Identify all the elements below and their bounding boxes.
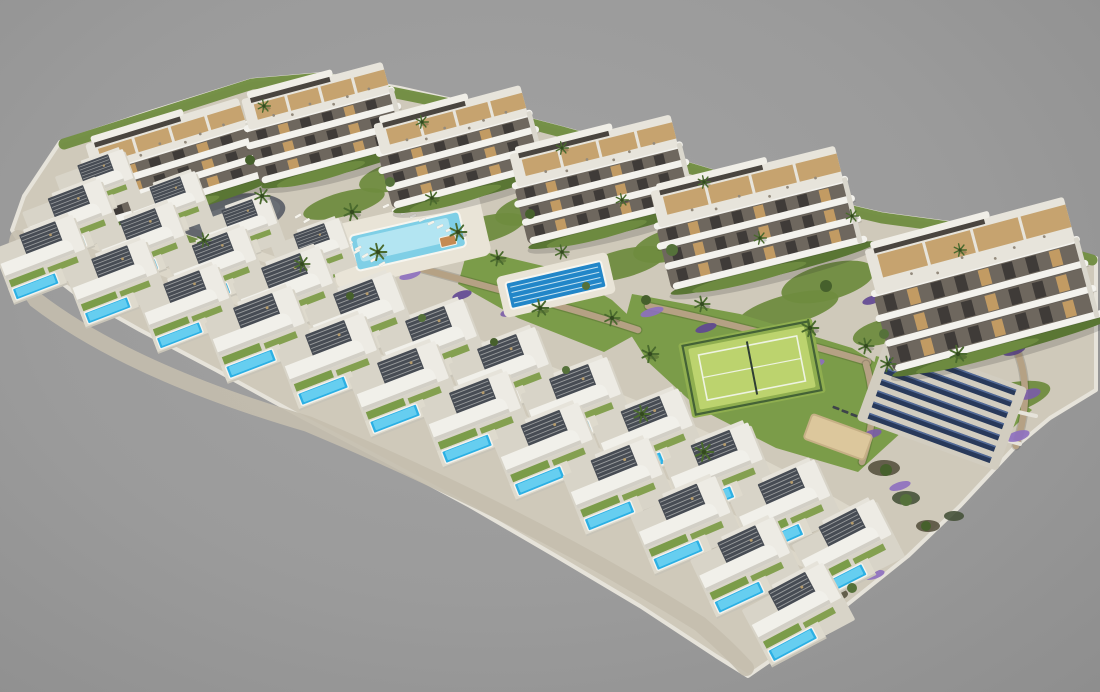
bush [562, 366, 570, 374]
bush [847, 583, 857, 593]
bush [879, 329, 889, 339]
bush [820, 280, 832, 292]
bush [490, 338, 498, 346]
render-canvas [0, 0, 1100, 692]
aerial-site-render [0, 0, 1100, 692]
bush [666, 244, 678, 256]
bush [418, 314, 426, 322]
bush [245, 155, 255, 165]
bush [346, 292, 354, 300]
bush [900, 494, 912, 506]
bush [641, 295, 651, 305]
bush [385, 177, 395, 187]
bush [921, 521, 931, 531]
bush [880, 464, 892, 476]
bush [525, 209, 535, 219]
rock-planting [944, 511, 964, 521]
bush [582, 282, 590, 290]
